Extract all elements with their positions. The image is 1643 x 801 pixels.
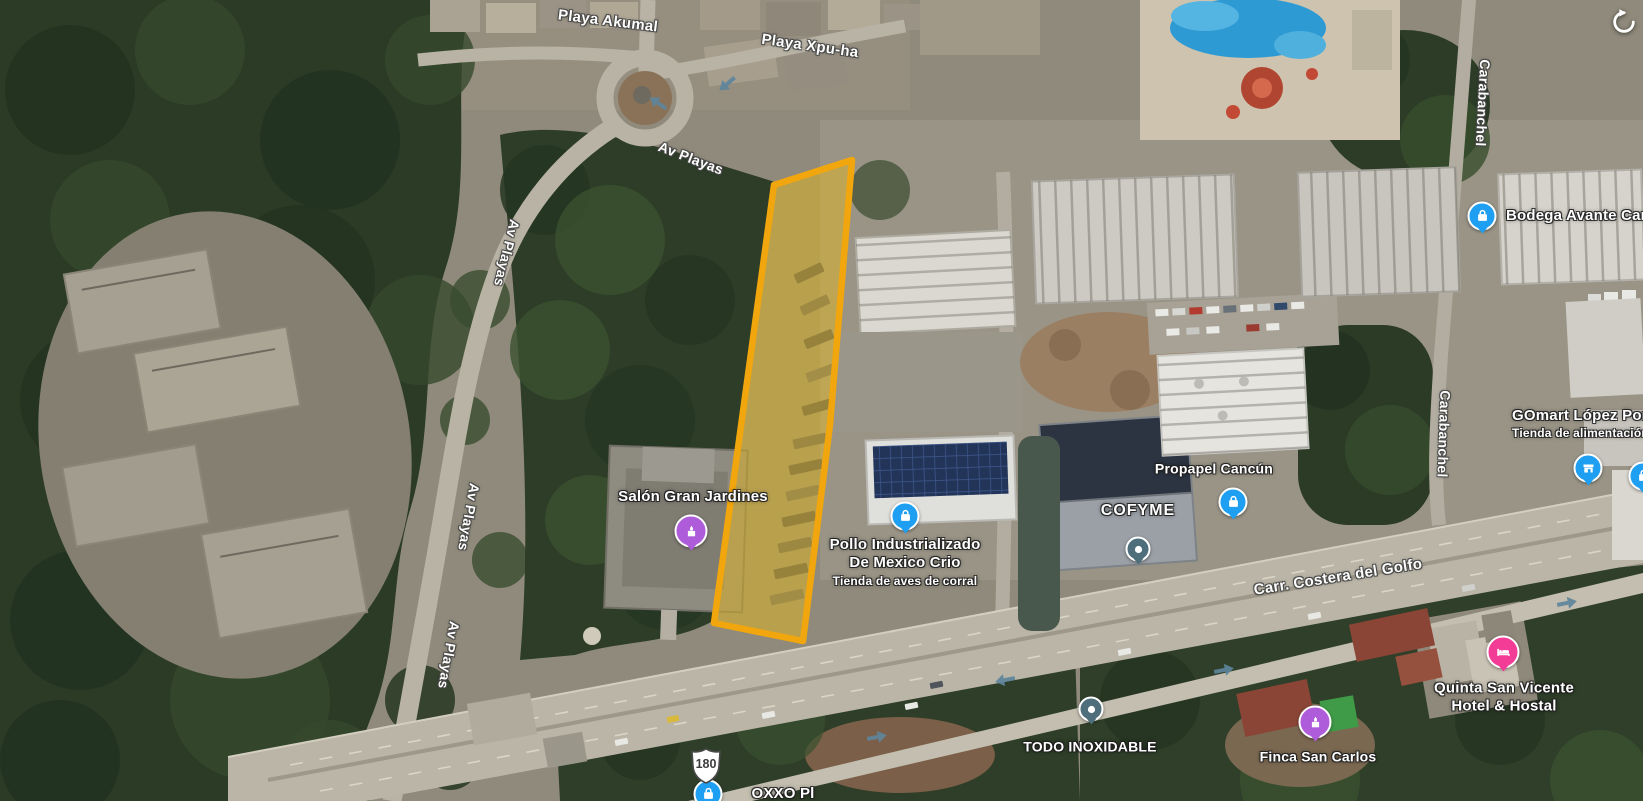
map-viewport[interactable]: Salón Gran JardinesPollo Industrializado… bbox=[0, 0, 1643, 801]
highway-shield: 180 bbox=[691, 748, 721, 784]
rotate-ccw-icon bbox=[1610, 8, 1638, 36]
map-controls-layer: 180 bbox=[0, 0, 1643, 801]
highway-number: 180 bbox=[691, 757, 721, 771]
compass-reset-rotation-button[interactable] bbox=[1607, 6, 1641, 40]
